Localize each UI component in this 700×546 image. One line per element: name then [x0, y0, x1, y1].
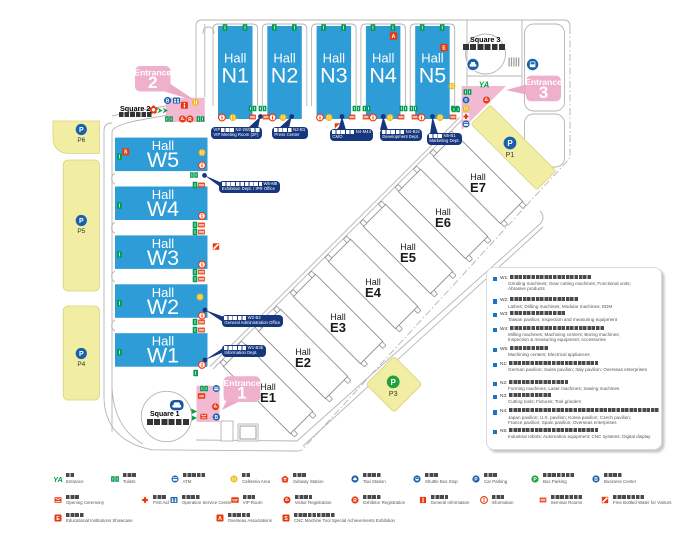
svg-text:E3: E3	[330, 320, 346, 335]
svg-text:N4: N4	[369, 64, 397, 88]
svg-text:W3: W3	[147, 246, 179, 270]
svg-text:B: B	[594, 476, 598, 482]
svg-text:W4: W4	[147, 197, 179, 221]
svg-text:S: S	[124, 150, 128, 156]
svg-text:VIP: VIP	[199, 394, 205, 398]
svg-text:P4: P4	[77, 361, 85, 368]
svg-text:P5: P5	[77, 228, 85, 235]
svg-text:P: P	[79, 127, 84, 134]
svg-text:A: A	[218, 516, 222, 522]
svg-text:N1: N1	[222, 64, 249, 88]
svg-text:P: P	[79, 351, 84, 358]
svg-text:N2: N2	[271, 64, 298, 88]
svg-text:A: A	[392, 34, 396, 40]
svg-text:P6: P6	[77, 137, 85, 144]
svg-text:P: P	[79, 218, 84, 225]
svg-text:P: P	[507, 139, 513, 148]
svg-text:N5: N5	[419, 64, 447, 88]
svg-text:R: R	[353, 498, 357, 504]
svg-text:YA: YA	[479, 80, 490, 89]
svg-text:S: S	[284, 516, 288, 522]
svg-text:E7: E7	[470, 180, 486, 195]
svg-text:E5: E5	[400, 250, 416, 265]
svg-text:E2: E2	[295, 355, 311, 370]
svg-text:R: R	[188, 117, 192, 123]
svg-text:E: E	[442, 45, 446, 51]
svg-text:B: B	[214, 415, 218, 421]
svg-text:E4: E4	[365, 285, 382, 300]
svg-text:W1: W1	[147, 344, 179, 368]
svg-text:VIP: VIP	[232, 498, 238, 502]
svg-text:3: 3	[539, 83, 548, 102]
svg-text:YA: YA	[53, 474, 62, 483]
svg-text:2: 2	[148, 73, 157, 92]
svg-text:E6: E6	[435, 215, 451, 230]
svg-text:W2: W2	[147, 295, 179, 319]
svg-text:P3: P3	[389, 391, 398, 398]
svg-text:E: E	[56, 516, 60, 522]
svg-text:W5: W5	[147, 148, 179, 172]
svg-text:E1: E1	[260, 390, 276, 405]
svg-text:N3: N3	[320, 64, 348, 88]
svg-text:1: 1	[237, 384, 246, 403]
svg-text:P: P	[391, 378, 397, 387]
svg-text:P1: P1	[506, 152, 515, 159]
svg-text:B: B	[166, 98, 170, 104]
